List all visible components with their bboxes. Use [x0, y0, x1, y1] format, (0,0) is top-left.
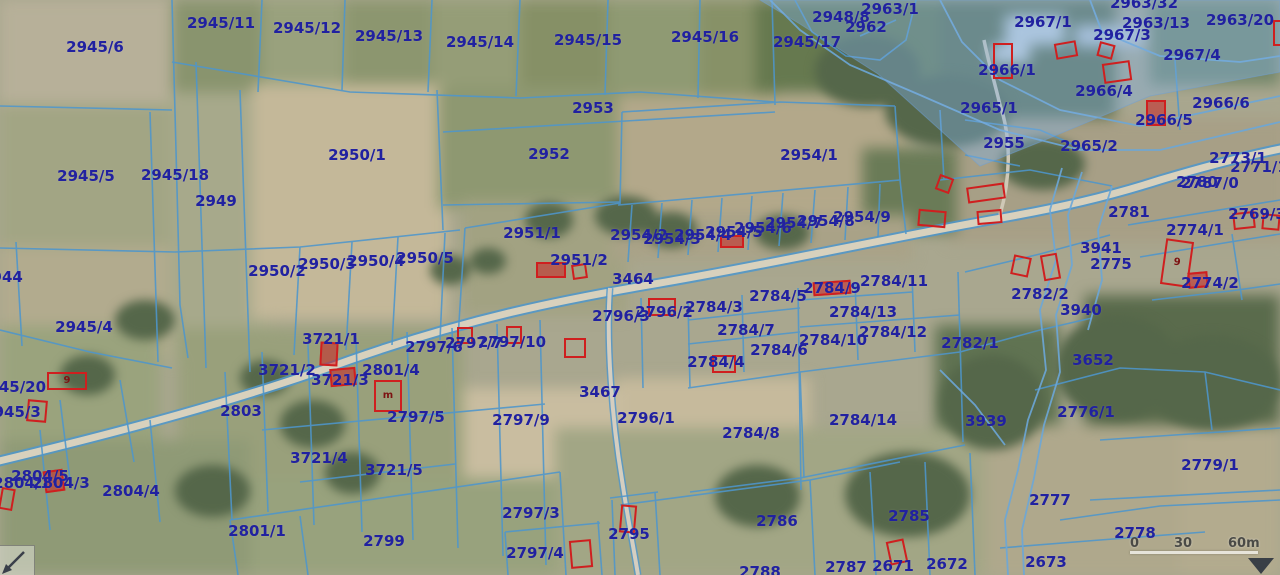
scale-bar: 0 30 60m: [1126, 536, 1266, 558]
hud-layer: 0 30 60m: [0, 0, 1280, 575]
scale-tick-60m: 60m: [1228, 536, 1260, 551]
scale-tick-0: 0: [1130, 536, 1139, 551]
map-corner-arrow-control[interactable]: [1248, 558, 1274, 574]
cadastral-map-viewport[interactable]: 9m9 2945/62945/112945/122945/132945/1429…: [0, 0, 1280, 575]
scale-bar-line: [1130, 551, 1258, 554]
scale-tick-30: 30: [1174, 536, 1192, 551]
map-pan-tool-icon[interactable]: [0, 545, 35, 575]
diagonal-arrow-icon: [0, 546, 34, 575]
